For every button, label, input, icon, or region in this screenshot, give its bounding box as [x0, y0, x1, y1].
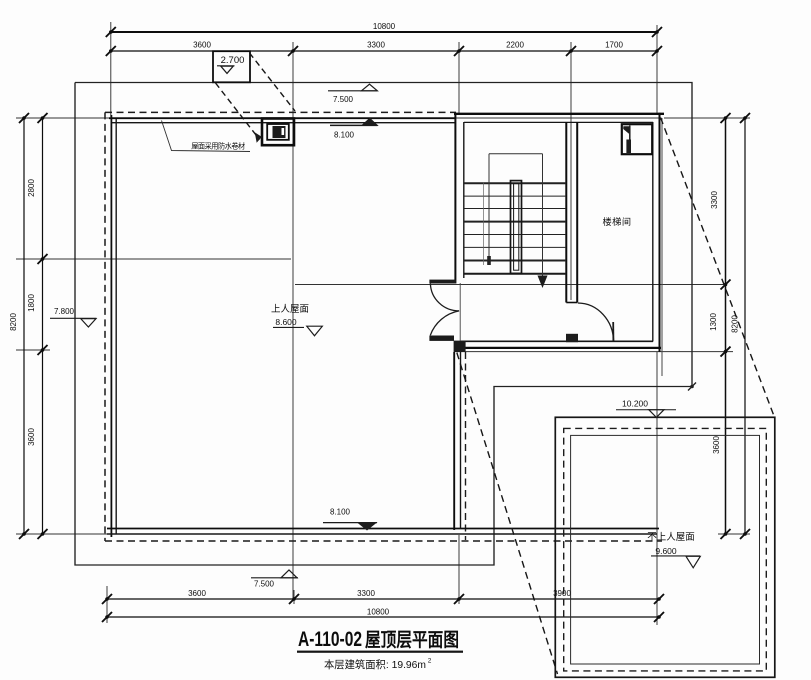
svg-text:8200: 8200 [9, 313, 18, 331]
svg-text:本层建筑面积: 19.96m: 本层建筑面积: 19.96m [324, 658, 426, 671]
svg-text:1300: 1300 [709, 313, 718, 331]
svg-text:8.100: 8.100 [330, 508, 351, 517]
svg-text:10800: 10800 [367, 608, 390, 617]
svg-text:2: 2 [428, 658, 432, 665]
svg-text:7.500: 7.500 [254, 580, 275, 589]
svg-text:10.200: 10.200 [622, 399, 648, 409]
svg-text:2.700: 2.700 [221, 55, 245, 66]
svg-text:3600: 3600 [712, 436, 721, 454]
svg-text:3300: 3300 [367, 41, 385, 50]
svg-text:3600: 3600 [193, 41, 211, 50]
svg-text:屋面采用防水卷材: 屋面采用防水卷材 [191, 142, 245, 151]
svg-text:3600: 3600 [188, 589, 206, 598]
svg-text:楼梯间: 楼梯间 [602, 216, 631, 227]
svg-text:A-110-02: A-110-02 [298, 628, 362, 651]
svg-text:8.100: 8.100 [334, 131, 355, 140]
svg-text:3600: 3600 [27, 428, 36, 446]
svg-text:2800: 2800 [27, 179, 36, 197]
svg-text:8.600: 8.600 [275, 317, 297, 327]
svg-text:7.500: 7.500 [333, 95, 354, 104]
svg-text:3300: 3300 [710, 191, 719, 209]
svg-text:上人屋面: 上人屋面 [271, 304, 309, 315]
svg-text:1800: 1800 [27, 294, 36, 312]
svg-text:10800: 10800 [373, 22, 396, 31]
svg-text:8200: 8200 [731, 315, 740, 333]
svg-text:7.800: 7.800 [54, 307, 75, 316]
svg-text:屋顶层平面图: 屋顶层平面图 [365, 629, 459, 651]
svg-text:2200: 2200 [506, 41, 524, 50]
svg-text:不上人屋面: 不上人屋面 [647, 532, 695, 543]
svg-text:3300: 3300 [357, 589, 375, 598]
svg-text:1700: 1700 [605, 41, 623, 50]
svg-text:9.600: 9.600 [655, 546, 677, 556]
